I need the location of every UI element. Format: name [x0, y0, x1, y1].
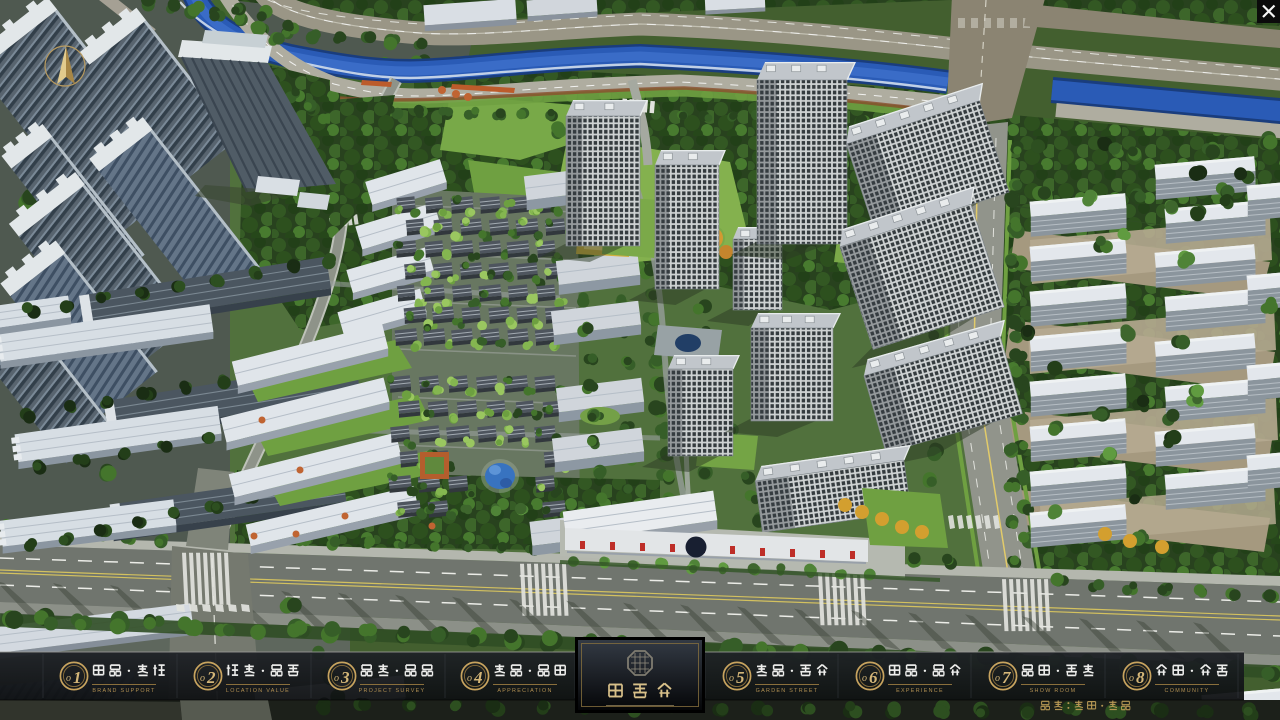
svg-text:PROJECT SURVEY: PROJECT SURVEY	[359, 688, 426, 694]
svg-text:o: o	[66, 673, 71, 684]
svg-text:o: o	[995, 673, 1000, 684]
svg-text:1: 1	[73, 668, 82, 687]
svg-text:SHOW ROOM: SHOW ROOM	[1030, 688, 1077, 694]
svg-text:GARDEN STREET: GARDEN STREET	[756, 688, 819, 694]
svg-text:EXPERIENCE: EXPERIENCE	[896, 688, 944, 694]
svg-text:o: o	[467, 673, 472, 684]
svg-text:3: 3	[340, 668, 350, 687]
svg-text:COMMUNITY: COMMUNITY	[1165, 688, 1210, 694]
svg-text:APPRECIATION: APPRECIATION	[497, 688, 552, 694]
svg-text:5: 5	[736, 668, 745, 687]
svg-text:o: o	[1129, 673, 1134, 684]
svg-text:4: 4	[473, 668, 483, 687]
svg-text:8: 8	[1136, 668, 1145, 687]
svg-text:o: o	[862, 673, 867, 684]
svg-text:6: 6	[869, 668, 878, 687]
svg-text:o: o	[334, 673, 339, 684]
svg-text:LOCATION VALUE: LOCATION VALUE	[226, 688, 290, 694]
svg-text:o: o	[200, 673, 205, 684]
svg-text:o: o	[729, 673, 734, 684]
svg-text:BRAND SUPPORT: BRAND SUPPORT	[92, 688, 155, 694]
svg-text:2: 2	[206, 668, 216, 687]
